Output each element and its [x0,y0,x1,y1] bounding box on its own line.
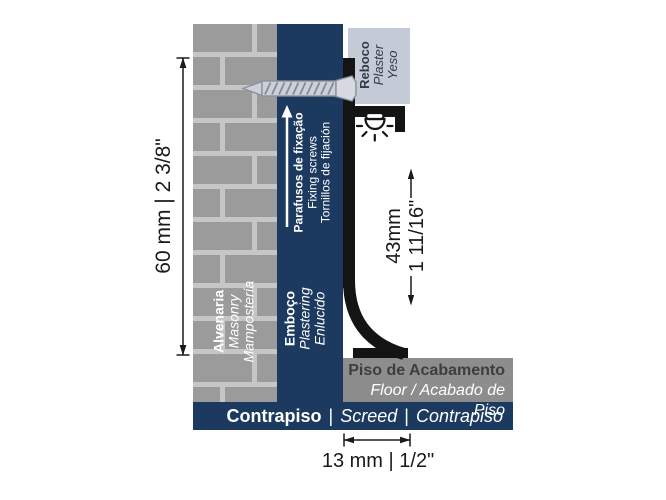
profile-front-lip [395,106,405,132]
skirting-installation-diagram: Contrapiso | Screed | Contrapiso Piso de… [0,0,666,500]
wall-label: Alvenaria Masonry Mampostería [212,257,257,387]
profile-foot [353,348,408,358]
screws-label-en: Fixing screws [306,108,320,238]
plastering-label-en: Plastering [298,259,313,379]
screws-label-pt: Parafusos de fixação [293,108,307,238]
plaster-label-es: Yeso [386,30,400,100]
screws-label: Parafusos de fixação Fixing screws Torni… [293,108,334,238]
exposed-height-mm: 43mm [383,166,406,306]
plaster-label-pt: Reboco [358,30,372,100]
base-depth-dimension-label: 13 mm | 1/2" [278,450,478,473]
led-dome [366,119,385,129]
wall-label-pt: Alvenaria [212,257,227,387]
led-light-icon [357,113,393,141]
plastering-label-es: Enlucido [313,259,328,379]
led-cap [366,113,384,119]
wall-label-es: Mampostería [242,257,257,387]
wall-label-en: Masonry [227,257,242,387]
plaster-label: Reboco Plaster Yeso [358,30,400,100]
fixing-screw-icon [243,76,356,101]
screw-tip [243,82,262,96]
diagram-overlay [0,0,666,500]
plastering-label-pt: Emboço [283,259,298,379]
exposed-height-dimension-label: 43mm 1 11/16" [383,166,429,306]
plastering-label: Emboço Plastering Enlucido [283,259,328,379]
screws-label-es: Tornillos de fijación [320,108,334,238]
screw-head [336,76,356,101]
dimension-base-depth [344,434,411,447]
plaster-label-en: Plaster [372,30,386,100]
total-height-dimension-label: 60 mm | 2 3/8" [152,56,176,356]
exposed-height-in: 1 11/16" [406,166,429,306]
dimension-total-height [177,58,190,356]
